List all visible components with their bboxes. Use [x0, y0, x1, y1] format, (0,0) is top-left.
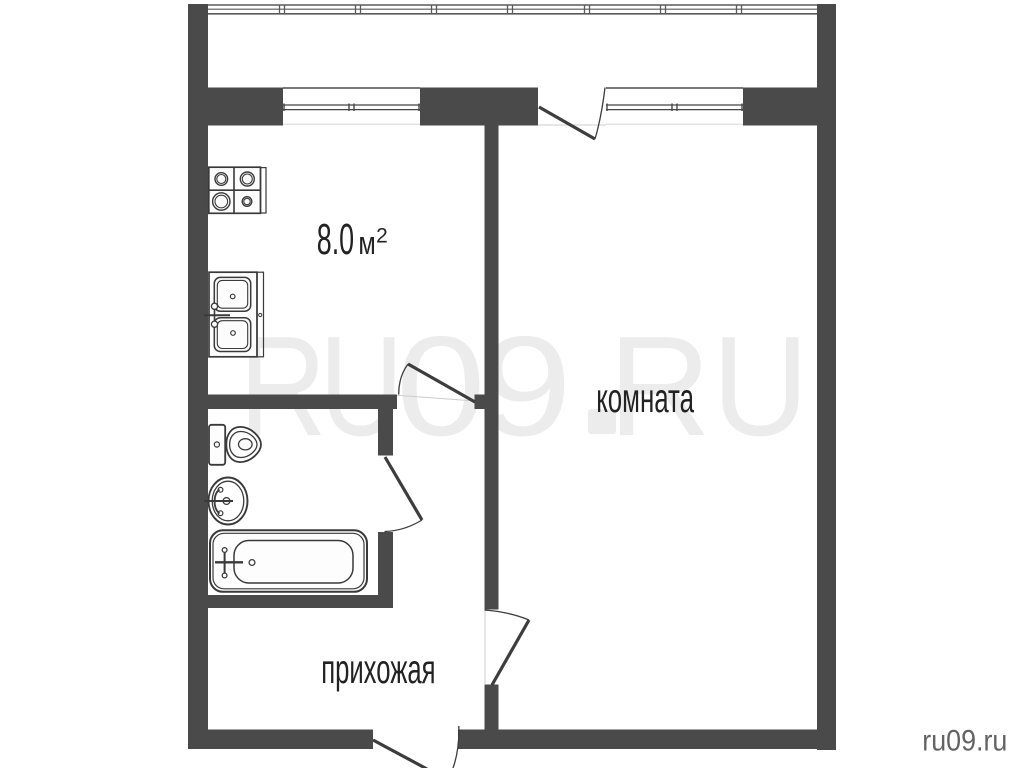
svg-text:прихожая: прихожая: [321, 647, 435, 692]
svg-text:2: 2: [376, 224, 388, 247]
svg-text:ru09.ru: ru09.ru: [922, 724, 1007, 758]
svg-text:комната: комната: [596, 376, 694, 421]
svg-text:U: U: [712, 307, 809, 465]
svg-text:8.0: 8.0: [317, 214, 354, 263]
svg-text:0: 0: [396, 307, 486, 466]
svg-text:м: м: [358, 226, 375, 262]
